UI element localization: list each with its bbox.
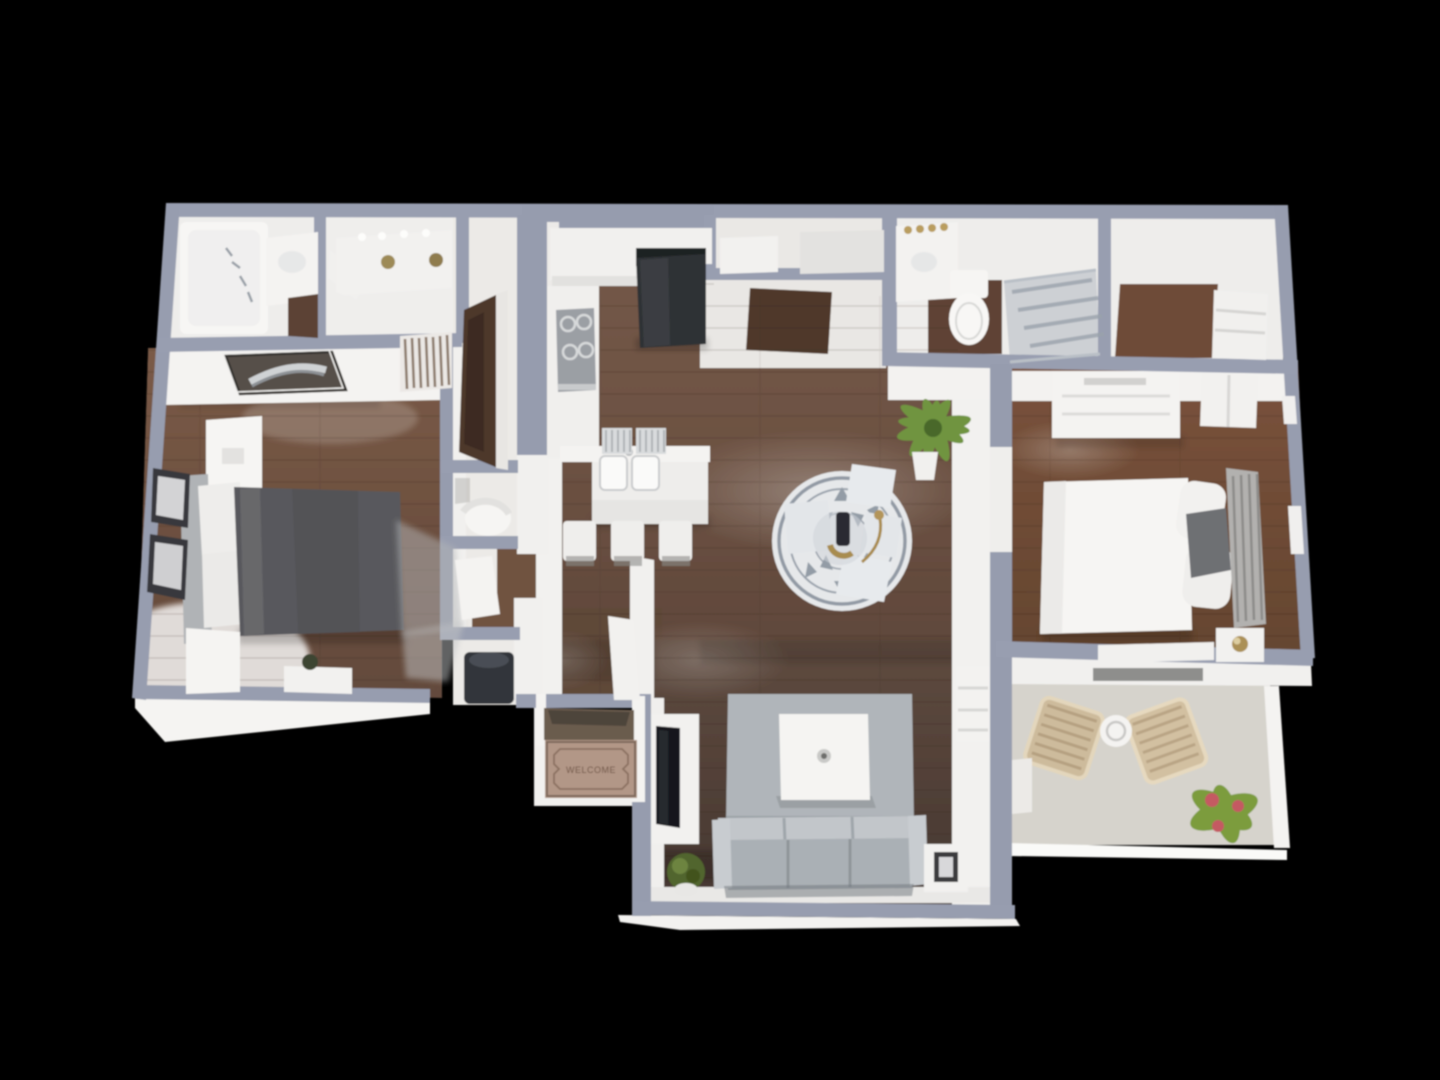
svg-text:WELCOME: WELCOME xyxy=(566,765,616,775)
